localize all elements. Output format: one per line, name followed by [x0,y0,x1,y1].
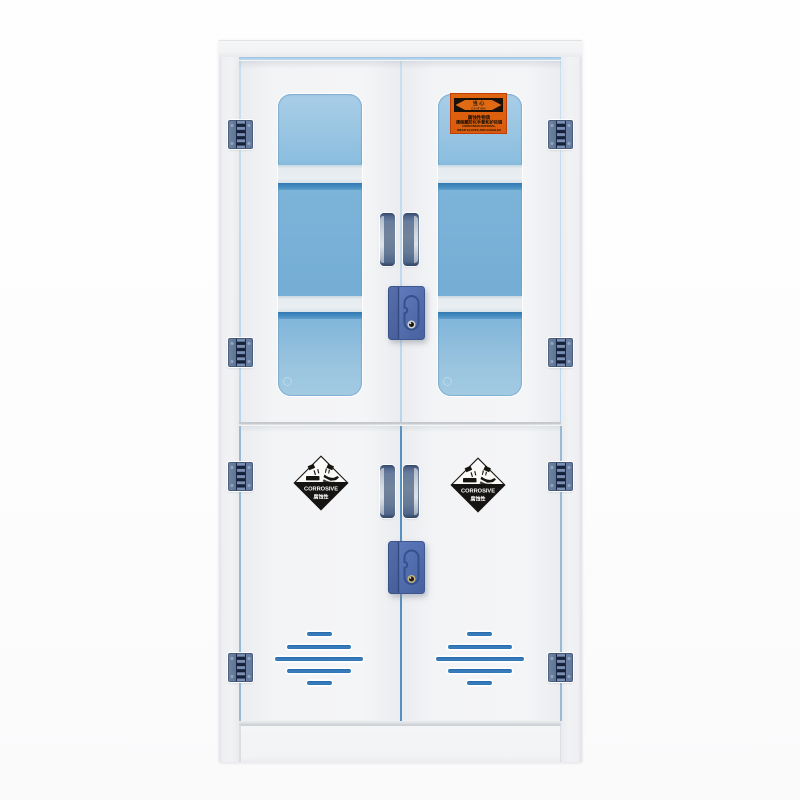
svg-text:CAUTION: CAUTION [471,106,486,110]
svg-text:当 心: 当 心 [473,99,486,107]
svg-text:腐蚀性: 腐蚀性 [470,495,485,502]
svg-text:CORROSIVE: CORROSIVE [304,486,339,492]
svg-text:CORROSIVE: CORROSIVE [461,489,496,495]
svg-text:腐蚀性: 腐蚀性 [313,493,328,500]
